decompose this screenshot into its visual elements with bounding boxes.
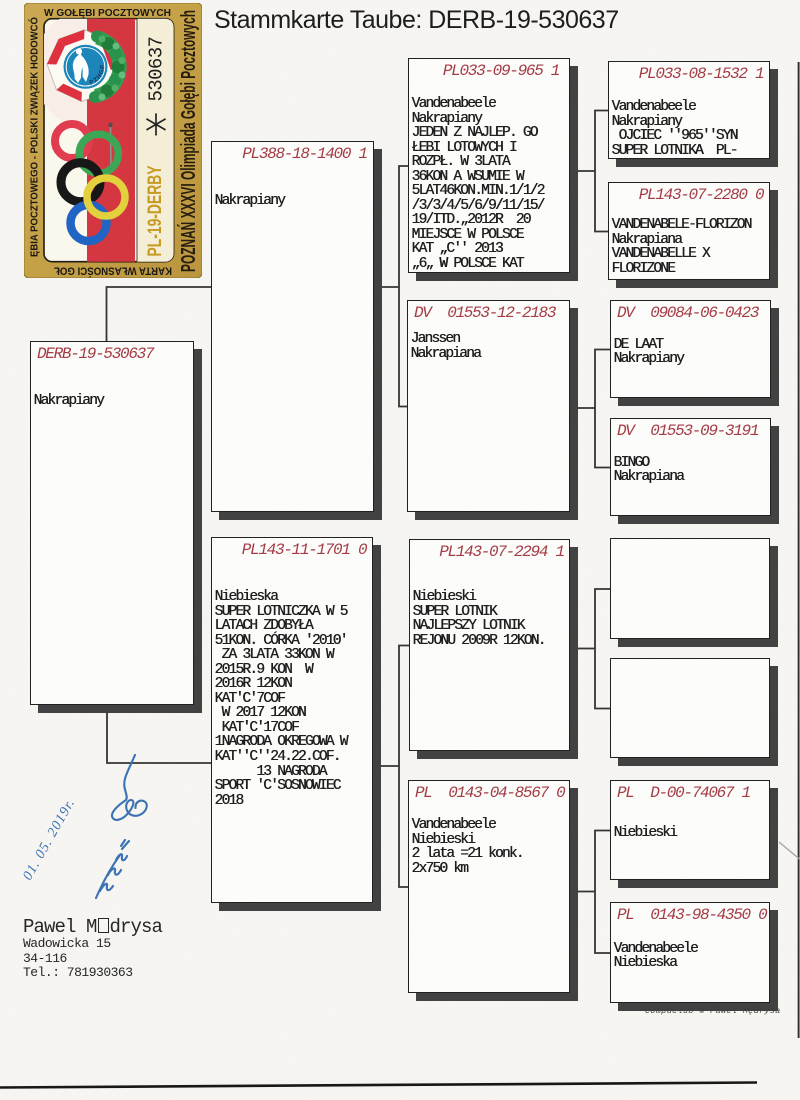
svg-text:01. 05. 2019r.: 01. 05. 2019r. <box>20 796 78 883</box>
svg-text:POZNAŃ XXXVI Olimpiada Gołębi: POZNAŃ XXXVI Olimpiada Gołębi Pocztowych <box>177 10 200 272</box>
svg-text:KARTA WŁASNOŚCI GOŁ: KARTA WŁASNOŚCI GOŁ <box>54 265 172 278</box>
svg-text:W GOŁĘBI POCZTOWYCH: W GOŁĘBI POCZTOWYCH <box>44 7 171 19</box>
svg-text:PL-19-DERBY: PL-19-DERBY <box>145 165 166 256</box>
svg-text:ĘBIA POCZTOWEGO - POLSKI ZWIĄZ: ĘBIA POCZTOWEGO - POLSKI ZWIĄZEK HODOWCÓ <box>28 17 41 257</box>
svg-text:530637: 530637 <box>146 37 168 102</box>
